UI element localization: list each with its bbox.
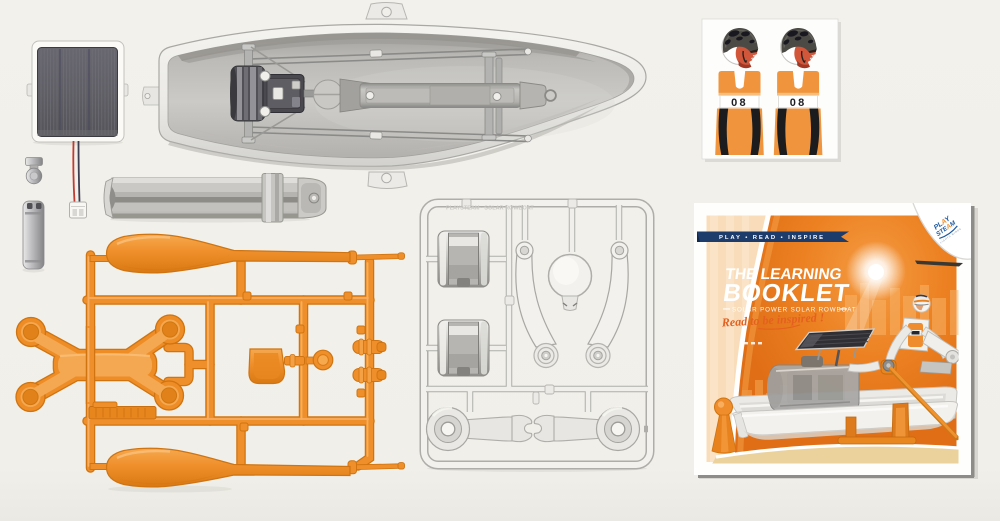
svg-text:PLAYSTEAM · SOLAR ROWBOAT: PLAYSTEAM · SOLAR ROWBOAT xyxy=(446,206,534,212)
svg-text:PLAY • READ • INSPIRE: PLAY • READ • INSPIRE xyxy=(719,235,825,241)
svg-text:08: 08 xyxy=(790,97,807,109)
svg-text:08: 08 xyxy=(731,97,748,109)
svg-text:BOOKLET: BOOKLET xyxy=(721,280,851,307)
